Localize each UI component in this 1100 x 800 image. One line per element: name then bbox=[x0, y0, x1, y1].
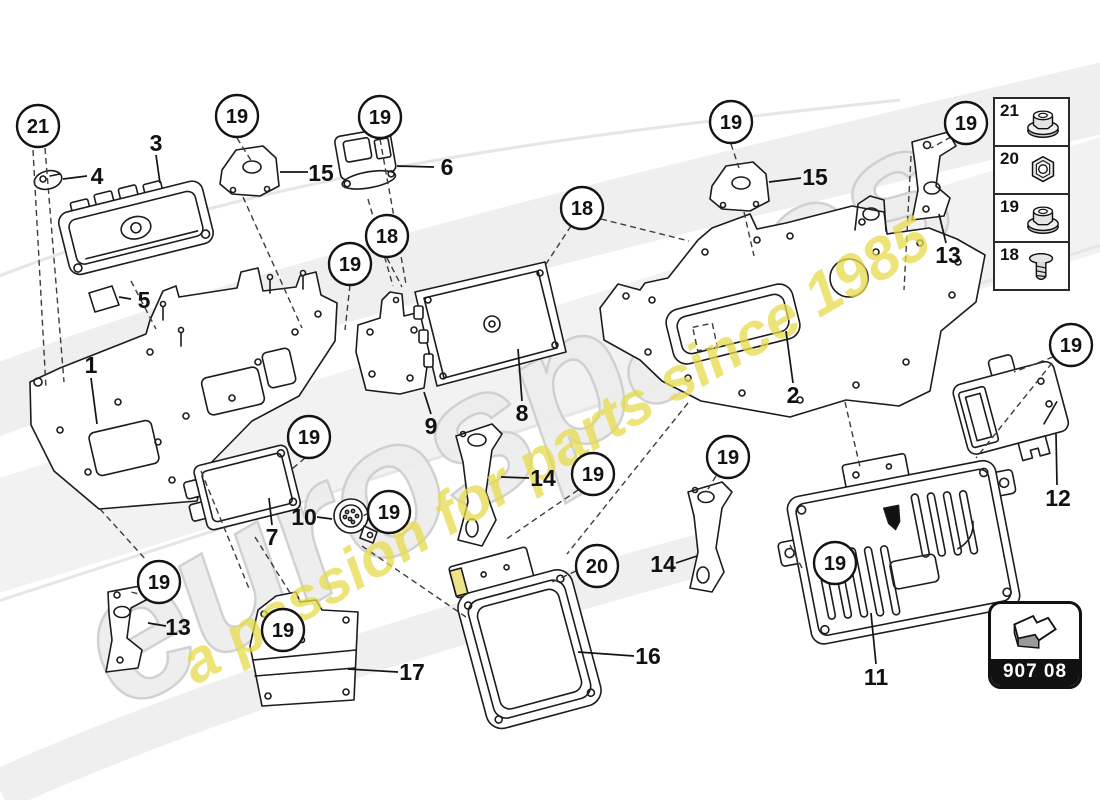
svg-text:21: 21 bbox=[27, 116, 49, 138]
part-label-4[interactable]: 4 bbox=[91, 163, 104, 189]
legend-row-19: 19 bbox=[995, 195, 1068, 243]
callout-21[interactable]: 21 bbox=[17, 105, 59, 147]
part-label-17[interactable]: 17 bbox=[399, 659, 425, 685]
leader-line-12 bbox=[1056, 434, 1057, 485]
callout-19[interactable]: 19 bbox=[216, 95, 258, 137]
callout-19[interactable]: 19 bbox=[572, 453, 614, 495]
callout-20[interactable]: 20 bbox=[576, 545, 618, 587]
legend-number: 18 bbox=[1000, 245, 1019, 265]
legend-number: 19 bbox=[1000, 197, 1019, 217]
part-label-13[interactable]: 13 bbox=[165, 614, 191, 640]
parts-diagram-page: eurospares bbox=[0, 0, 1100, 800]
legend-row-20: 20 bbox=[995, 147, 1068, 195]
callout-19[interactable]: 19 bbox=[288, 416, 330, 458]
part-label-7[interactable]: 7 bbox=[266, 524, 279, 550]
callout-19[interactable]: 19 bbox=[814, 542, 856, 584]
hex-nut-icon bbox=[1021, 152, 1065, 190]
part-label-11[interactable]: 11 bbox=[864, 664, 889, 690]
part-label-1[interactable]: 1 bbox=[85, 352, 98, 378]
svg-text:19: 19 bbox=[955, 113, 977, 135]
part-label-14[interactable]: 14 bbox=[530, 465, 556, 491]
svg-text:19: 19 bbox=[720, 112, 742, 134]
part-label-15[interactable]: 15 bbox=[802, 164, 828, 190]
part-label-5[interactable]: 5 bbox=[138, 287, 151, 313]
part-label-2[interactable]: 2 bbox=[787, 382, 800, 408]
part-label-13[interactable]: 13 bbox=[935, 242, 961, 268]
screw-icon bbox=[1021, 248, 1065, 286]
part-label-6[interactable]: 6 bbox=[441, 154, 454, 180]
diagram-nav-arrow-icon bbox=[991, 604, 1079, 659]
callout-19[interactable]: 19 bbox=[707, 436, 749, 478]
leader-line-14 bbox=[501, 477, 529, 478]
part-label-8[interactable]: 8 bbox=[516, 400, 529, 426]
callout-19[interactable]: 19 bbox=[368, 491, 410, 533]
part-label-10[interactable]: 10 bbox=[291, 504, 317, 530]
callout-19[interactable]: 19 bbox=[945, 102, 987, 144]
callout-19[interactable]: 19 bbox=[138, 561, 180, 603]
exploded-parts-diagram: eurospares bbox=[0, 0, 1100, 800]
callout-19[interactable]: 19 bbox=[329, 243, 371, 285]
part-3-control-unit bbox=[54, 169, 216, 277]
svg-text:19: 19 bbox=[378, 502, 400, 524]
part-label-15[interactable]: 15 bbox=[308, 160, 334, 186]
svg-text:19: 19 bbox=[339, 254, 361, 276]
svg-text:20: 20 bbox=[586, 556, 608, 578]
svg-text:19: 19 bbox=[148, 572, 170, 594]
svg-text:19: 19 bbox=[582, 464, 604, 486]
part-label-14[interactable]: 14 bbox=[650, 551, 676, 577]
flange-nut-icon bbox=[1021, 104, 1065, 142]
part-5-pad bbox=[89, 286, 119, 312]
svg-text:18: 18 bbox=[571, 198, 593, 220]
leader-line-3 bbox=[156, 155, 160, 183]
svg-text:19: 19 bbox=[298, 427, 320, 449]
part-15-bracket-left bbox=[220, 146, 279, 196]
callout-19[interactable]: 19 bbox=[710, 101, 752, 143]
flange-nut-icon bbox=[1021, 200, 1065, 238]
svg-text:19: 19 bbox=[369, 107, 391, 129]
svg-text:18: 18 bbox=[376, 226, 398, 248]
callout-19[interactable]: 19 bbox=[359, 96, 401, 138]
part-label-3[interactable]: 3 bbox=[150, 130, 163, 156]
leader-line-5 bbox=[119, 297, 131, 299]
leader-line-6 bbox=[397, 166, 434, 167]
legend-row-21: 21 bbox=[995, 99, 1068, 147]
svg-text:19: 19 bbox=[717, 447, 739, 469]
legend-number: 20 bbox=[1000, 149, 1019, 169]
callout-18[interactable]: 18 bbox=[366, 215, 408, 257]
part-label-16[interactable]: 16 bbox=[635, 643, 661, 669]
svg-text:19: 19 bbox=[1060, 335, 1082, 357]
svg-text:19: 19 bbox=[272, 620, 294, 642]
svg-text:19: 19 bbox=[226, 106, 248, 128]
part-label-9[interactable]: 9 bbox=[425, 413, 438, 439]
leader-line-4 bbox=[63, 176, 87, 179]
diagram-group-badge: 907 08 bbox=[988, 601, 1082, 689]
callout-18[interactable]: 18 bbox=[561, 187, 603, 229]
callout-19[interactable]: 19 bbox=[262, 609, 304, 651]
legend-number: 21 bbox=[1000, 101, 1019, 121]
part-label-12[interactable]: 12 bbox=[1045, 485, 1071, 511]
fastener-legend: 21201918 bbox=[993, 97, 1070, 291]
diagram-group-code: 907 08 bbox=[991, 659, 1079, 686]
callout-19[interactable]: 19 bbox=[1050, 324, 1092, 366]
svg-text:19: 19 bbox=[824, 553, 846, 575]
legend-row-18: 18 bbox=[995, 243, 1068, 289]
